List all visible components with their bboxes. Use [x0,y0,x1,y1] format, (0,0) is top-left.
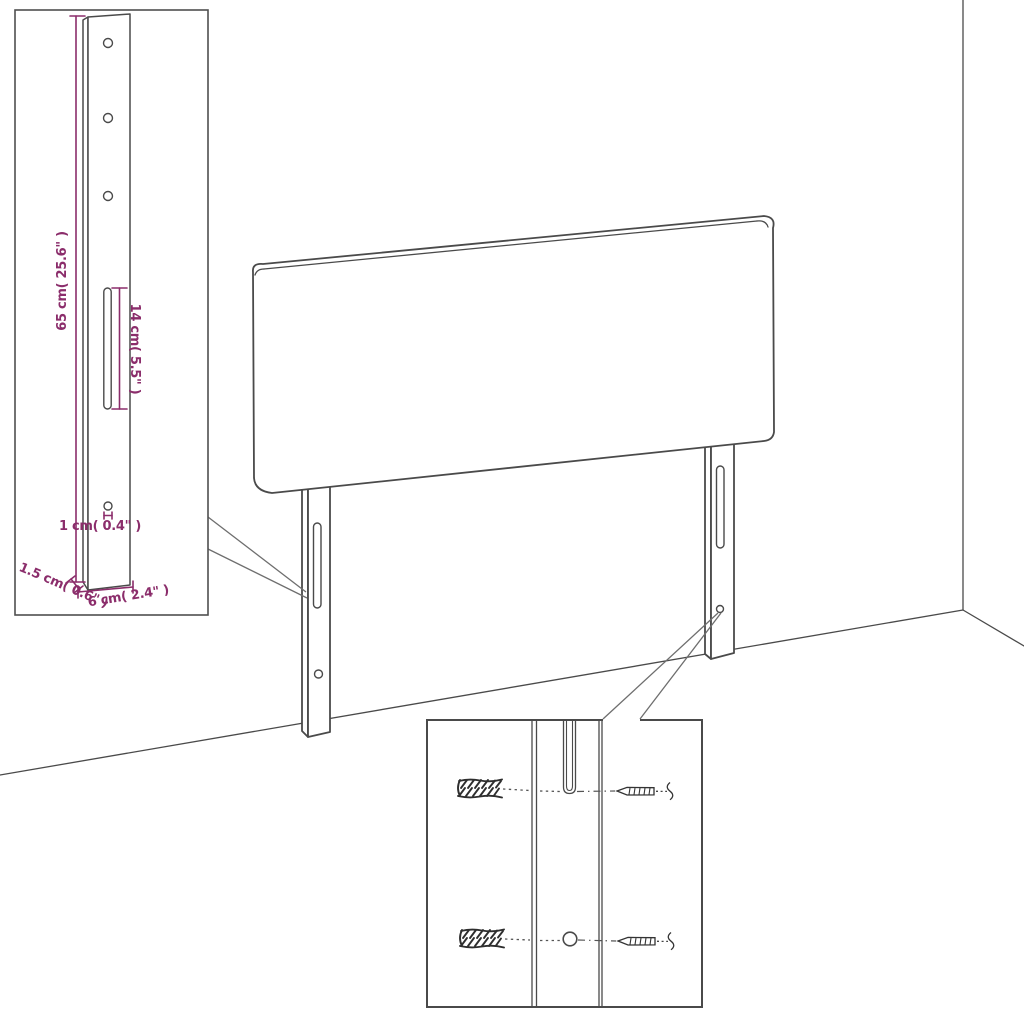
callout-leader-line-top-2 [208,549,307,598]
bracket-hole-3 [104,192,113,201]
bracket-hole-1 [104,39,113,48]
bracket-detail-inset: 65 cm( 25.6" ) 14 cm( 5.5" ) 1 cm( 0.4" … [15,10,208,615]
bracket-slot [104,288,111,409]
right-leg-hole [717,606,724,613]
headboard-technical-drawing: 65 cm( 25.6" ) 14 cm( 5.5" ) 1 cm( 0.4" … [0,0,1024,1024]
headboard-right-leg [705,441,734,659]
dim-hole-label: 1 cm( 0.4" ) [59,519,141,534]
floor-wall-line-right [963,610,1024,646]
dim-slot-label: 14 cm( 5.5" ) [127,304,142,395]
headboard-panel-outline [253,216,774,493]
bracket-bottom-hole [104,502,112,510]
assembly-diagram: 65 cm( 25.6" ) 14 cm( 5.5" ) 1 cm( 0.4" … [0,0,1024,1024]
left-leg-hole [315,670,323,678]
mounting-hole-detail [563,932,577,946]
headboard-left-leg [302,486,330,737]
right-leg-slot [717,466,725,548]
dim-height-label: 65 cm( 25.6" ) [55,231,70,330]
left-leg-slot [314,523,322,608]
detail-box-background [428,721,701,1006]
callout-leader-line-top-1 [208,517,306,592]
bracket-hole-2 [104,114,113,123]
callout-leader-line-bottom-2 [640,613,721,719]
mounting-detail-inset [427,720,702,1007]
headboard-panel [253,216,774,493]
callout-leader-line-bottom-1 [603,613,718,719]
